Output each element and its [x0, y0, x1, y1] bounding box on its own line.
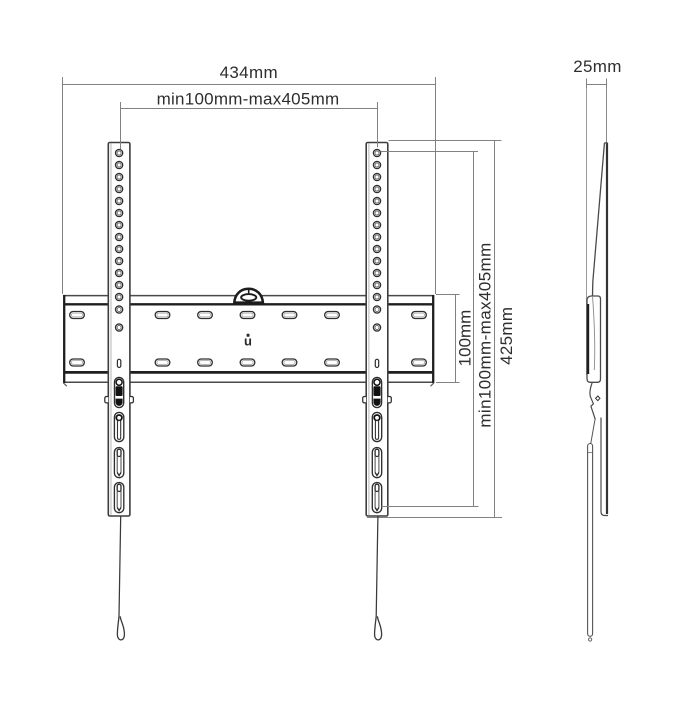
- svg-text:100mm: 100mm: [456, 310, 475, 367]
- svg-text:25mm: 25mm: [573, 57, 621, 76]
- svg-text:425mm: 425mm: [497, 307, 516, 365]
- svg-text:434mm: 434mm: [220, 63, 278, 82]
- svg-text:min100mm-max405mm: min100mm-max405mm: [476, 242, 495, 427]
- svg-text:min100mm-max405mm: min100mm-max405mm: [157, 89, 340, 108]
